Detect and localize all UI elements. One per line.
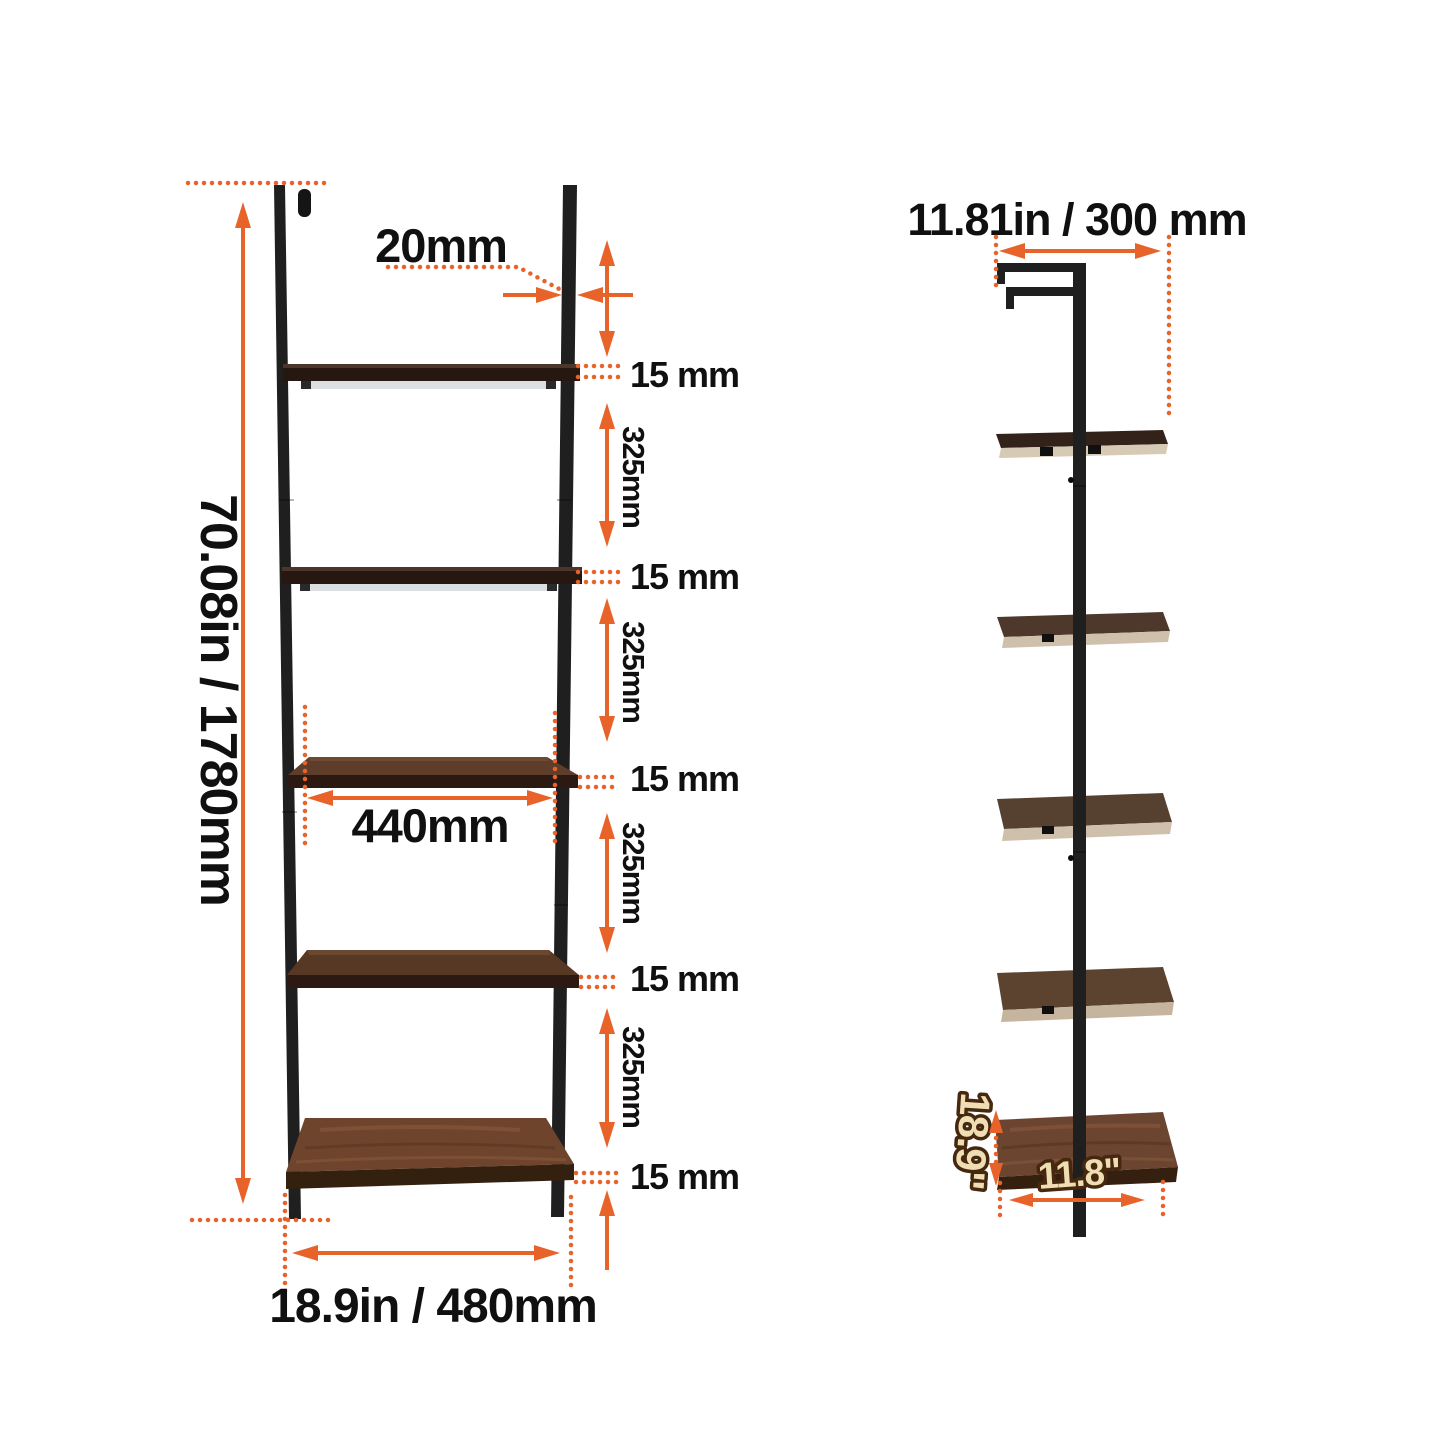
side-pole <box>997 263 1086 1237</box>
ladder-shelf-dimension-diagram: 70.08in / 1780mm 20mm 15 mm 15 mm 15 mm <box>0 0 1445 1445</box>
diagram-canvas: 70.08in / 1780mm 20mm 15 mm 15 mm 15 mm <box>0 0 1445 1445</box>
dim-overall-height: 70.08in / 1780mm <box>188 183 332 1220</box>
front-shelf-1 <box>283 364 580 389</box>
dim-overall-width: 18.9in / 480mm <box>269 1195 597 1333</box>
shelf-depth-label: 18.9" <box>946 1091 1000 1191</box>
thickness-label-5: 15 mm <box>630 1156 739 1197</box>
thickness-label-3: 15 mm <box>630 758 739 799</box>
wall-mount-tab <box>298 189 311 217</box>
shelf-span-label: 440mm <box>352 799 509 852</box>
dim-tube-20mm: 20mm <box>375 219 633 357</box>
overall-width-label: 18.9in / 480mm <box>269 1280 597 1333</box>
depth-label: 11.81in / 300 mm <box>907 194 1246 245</box>
front-shelf-5 <box>286 1118 574 1189</box>
front-shelf-4 <box>287 950 579 988</box>
front-right-rail <box>551 185 577 1217</box>
overall-height-label: 70.08in / 1780mm <box>189 494 247 906</box>
thickness-label-4: 15 mm <box>630 958 739 999</box>
dim-shelf-depth: 18.9" <box>946 1091 1003 1191</box>
front-shelf-3 <box>288 757 578 788</box>
dim-shelf-spacing: 325mm 325mm 325mm 325mm <box>599 403 651 1270</box>
spacing-label-2: 325mm <box>616 621 651 723</box>
thickness-label-2: 15 mm <box>630 556 739 597</box>
spacing-label-4: 325mm <box>616 1026 651 1128</box>
shelf-front-label: 11.8" <box>1037 1150 1122 1197</box>
front-view: 70.08in / 1780mm 20mm 15 mm 15 mm 15 mm <box>188 183 739 1333</box>
spacing-label-3: 325mm <box>616 822 651 924</box>
dim-shelf-thickness: 15 mm 15 mm 15 mm 15 mm 15 mm <box>576 354 739 1197</box>
front-shelf-2 <box>282 567 582 591</box>
spacing-label-1: 325mm <box>616 426 651 528</box>
tube-label: 20mm <box>375 219 507 272</box>
side-view: 11.81in / 300 mm 18.9" 11.8" <box>907 194 1246 1237</box>
thickness-label-1: 15 mm <box>630 354 739 395</box>
front-left-rail <box>274 185 301 1219</box>
